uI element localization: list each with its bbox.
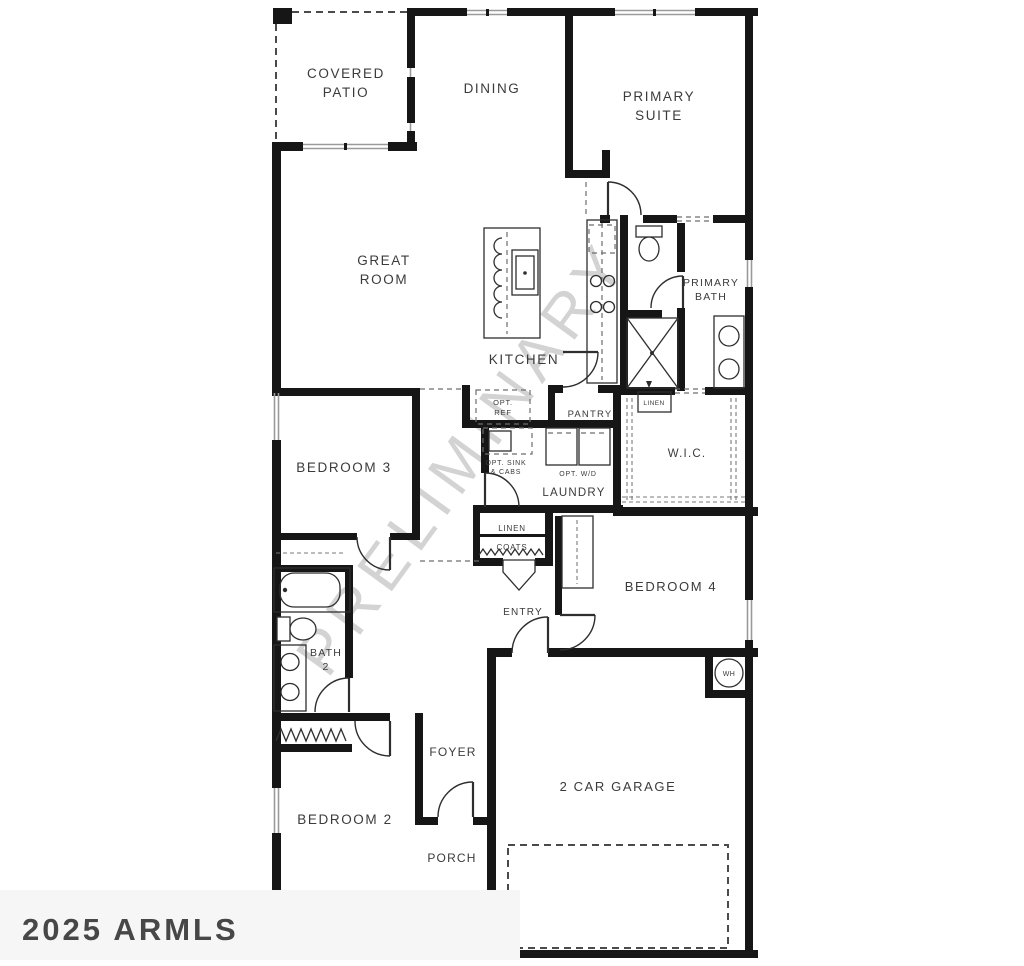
window (303, 143, 388, 150)
wall-segment (272, 713, 352, 721)
wall-segment (412, 388, 420, 535)
bedroom4-door (560, 615, 595, 650)
room-label-foyer: FOYER (429, 745, 476, 759)
wall-segment (272, 533, 357, 540)
room-label-great-room: GREATROOM (357, 253, 411, 287)
bath2-toilet-icon (277, 617, 316, 641)
label-linen-wic: LINEN (643, 400, 664, 407)
garage-door-dashed (508, 845, 728, 948)
toilet-room-door (651, 276, 683, 308)
window (748, 600, 752, 640)
wall-segment (545, 513, 553, 565)
kitchen-island (484, 228, 540, 338)
wall-segment (272, 440, 281, 788)
front-door (438, 782, 473, 817)
wall-segment (480, 534, 545, 537)
svg-text:WH: WH (723, 671, 735, 678)
label-coats: COATS (497, 543, 528, 552)
room-label-primary-bath: PRIMARYBATH (683, 277, 739, 303)
room-label-porch: PORCH (427, 851, 476, 865)
bedroom2-closet-rod (276, 729, 346, 741)
floor-plan-drawing: PRELIMINARY (0, 0, 1024, 966)
bedroom2-door (355, 721, 390, 756)
room-label-entry: ENTRY (503, 607, 543, 618)
window (748, 260, 752, 287)
room-label-dining: DINING (464, 81, 521, 96)
room-label-kitchen: KITCHEN (489, 352, 559, 367)
primary-toilet-icon (636, 226, 662, 261)
wall-segment (745, 287, 753, 600)
room-label-bedroom4: BEDROOM 4 (625, 579, 717, 594)
bath2-door (315, 678, 349, 712)
wall-segment (598, 385, 622, 393)
wall-segment (565, 170, 608, 178)
wall-segment (548, 648, 758, 657)
wall-segment (600, 215, 610, 223)
garage-entry-door (512, 617, 548, 653)
room-label-bedroom3: BEDROOM 3 (296, 460, 391, 475)
wall-segment (473, 558, 503, 566)
wall-segment (487, 950, 758, 958)
label-opt-wd: OPT. W/D (559, 471, 597, 478)
room-label-primary-suite: PRIMARYSUITE (623, 89, 695, 123)
room-label-wic: W.I.C. (668, 448, 707, 460)
wall-segment (272, 744, 352, 752)
dashed-lines (276, 12, 728, 948)
patio-post (273, 8, 292, 24)
armls-stamp: 2025 ARMLS (0, 890, 520, 960)
room-label-pantry: PANTRY (568, 409, 613, 420)
wall-segment (415, 8, 467, 16)
window (275, 393, 279, 440)
wall-segment (415, 713, 423, 825)
coat-closet-door (503, 560, 535, 590)
wall-segment (535, 558, 553, 566)
wall-segment (565, 8, 573, 178)
primary-vanity-icon (714, 316, 744, 388)
window (467, 9, 507, 16)
room-label-garage: 2 CAR GARAGE (560, 779, 677, 794)
window (275, 788, 279, 833)
wall-segment (713, 215, 753, 223)
label-opt-ref: OPT.REF (493, 398, 513, 417)
wic-shelving (622, 392, 748, 502)
wall-segment (407, 131, 415, 145)
bedroom4-closet (562, 516, 593, 588)
window (615, 9, 695, 16)
room-label-covered-patio: COVEREDPATIO (307, 66, 385, 100)
wall-segment (272, 388, 420, 396)
wall-segment (407, 77, 415, 123)
wall-segment (613, 507, 758, 516)
water-heater-icon: WH (715, 659, 743, 687)
preliminary-watermark: PRELIMINARY (283, 228, 643, 688)
room-labels: COVEREDPATIO DINING PRIMARYSUITE GREATRO… (296, 66, 739, 865)
wall-segment (507, 8, 615, 16)
wall-segment (677, 223, 685, 272)
wall-segment (272, 142, 281, 393)
wall-segment (407, 8, 415, 68)
wall-segment (643, 215, 677, 223)
wall-segment (745, 640, 753, 958)
washer-dryer-icon (546, 428, 610, 465)
shower-icon (627, 318, 678, 388)
wall-segment (390, 533, 420, 540)
wall-segment (345, 565, 353, 678)
primary-suite-door (608, 182, 641, 215)
room-label-laundry: LAUNDRY (542, 487, 605, 499)
wall-segment (473, 505, 623, 513)
wall-segment (352, 713, 390, 721)
wall-segment (555, 516, 562, 615)
wall-segment (628, 310, 662, 318)
label-linen-hall: LINEN (498, 524, 526, 533)
wall-segment (602, 150, 610, 178)
wall-segment (473, 817, 487, 825)
room-label-bedroom2: BEDROOM 2 (297, 812, 392, 827)
wall-segment (705, 690, 753, 698)
wall-segment (473, 513, 480, 565)
armls-watermark: 2025 ARMLS (22, 912, 239, 947)
wall-segment (613, 390, 621, 515)
floor-plan-page: PRELIMINARY (0, 0, 1024, 966)
wall-segment (548, 385, 555, 428)
